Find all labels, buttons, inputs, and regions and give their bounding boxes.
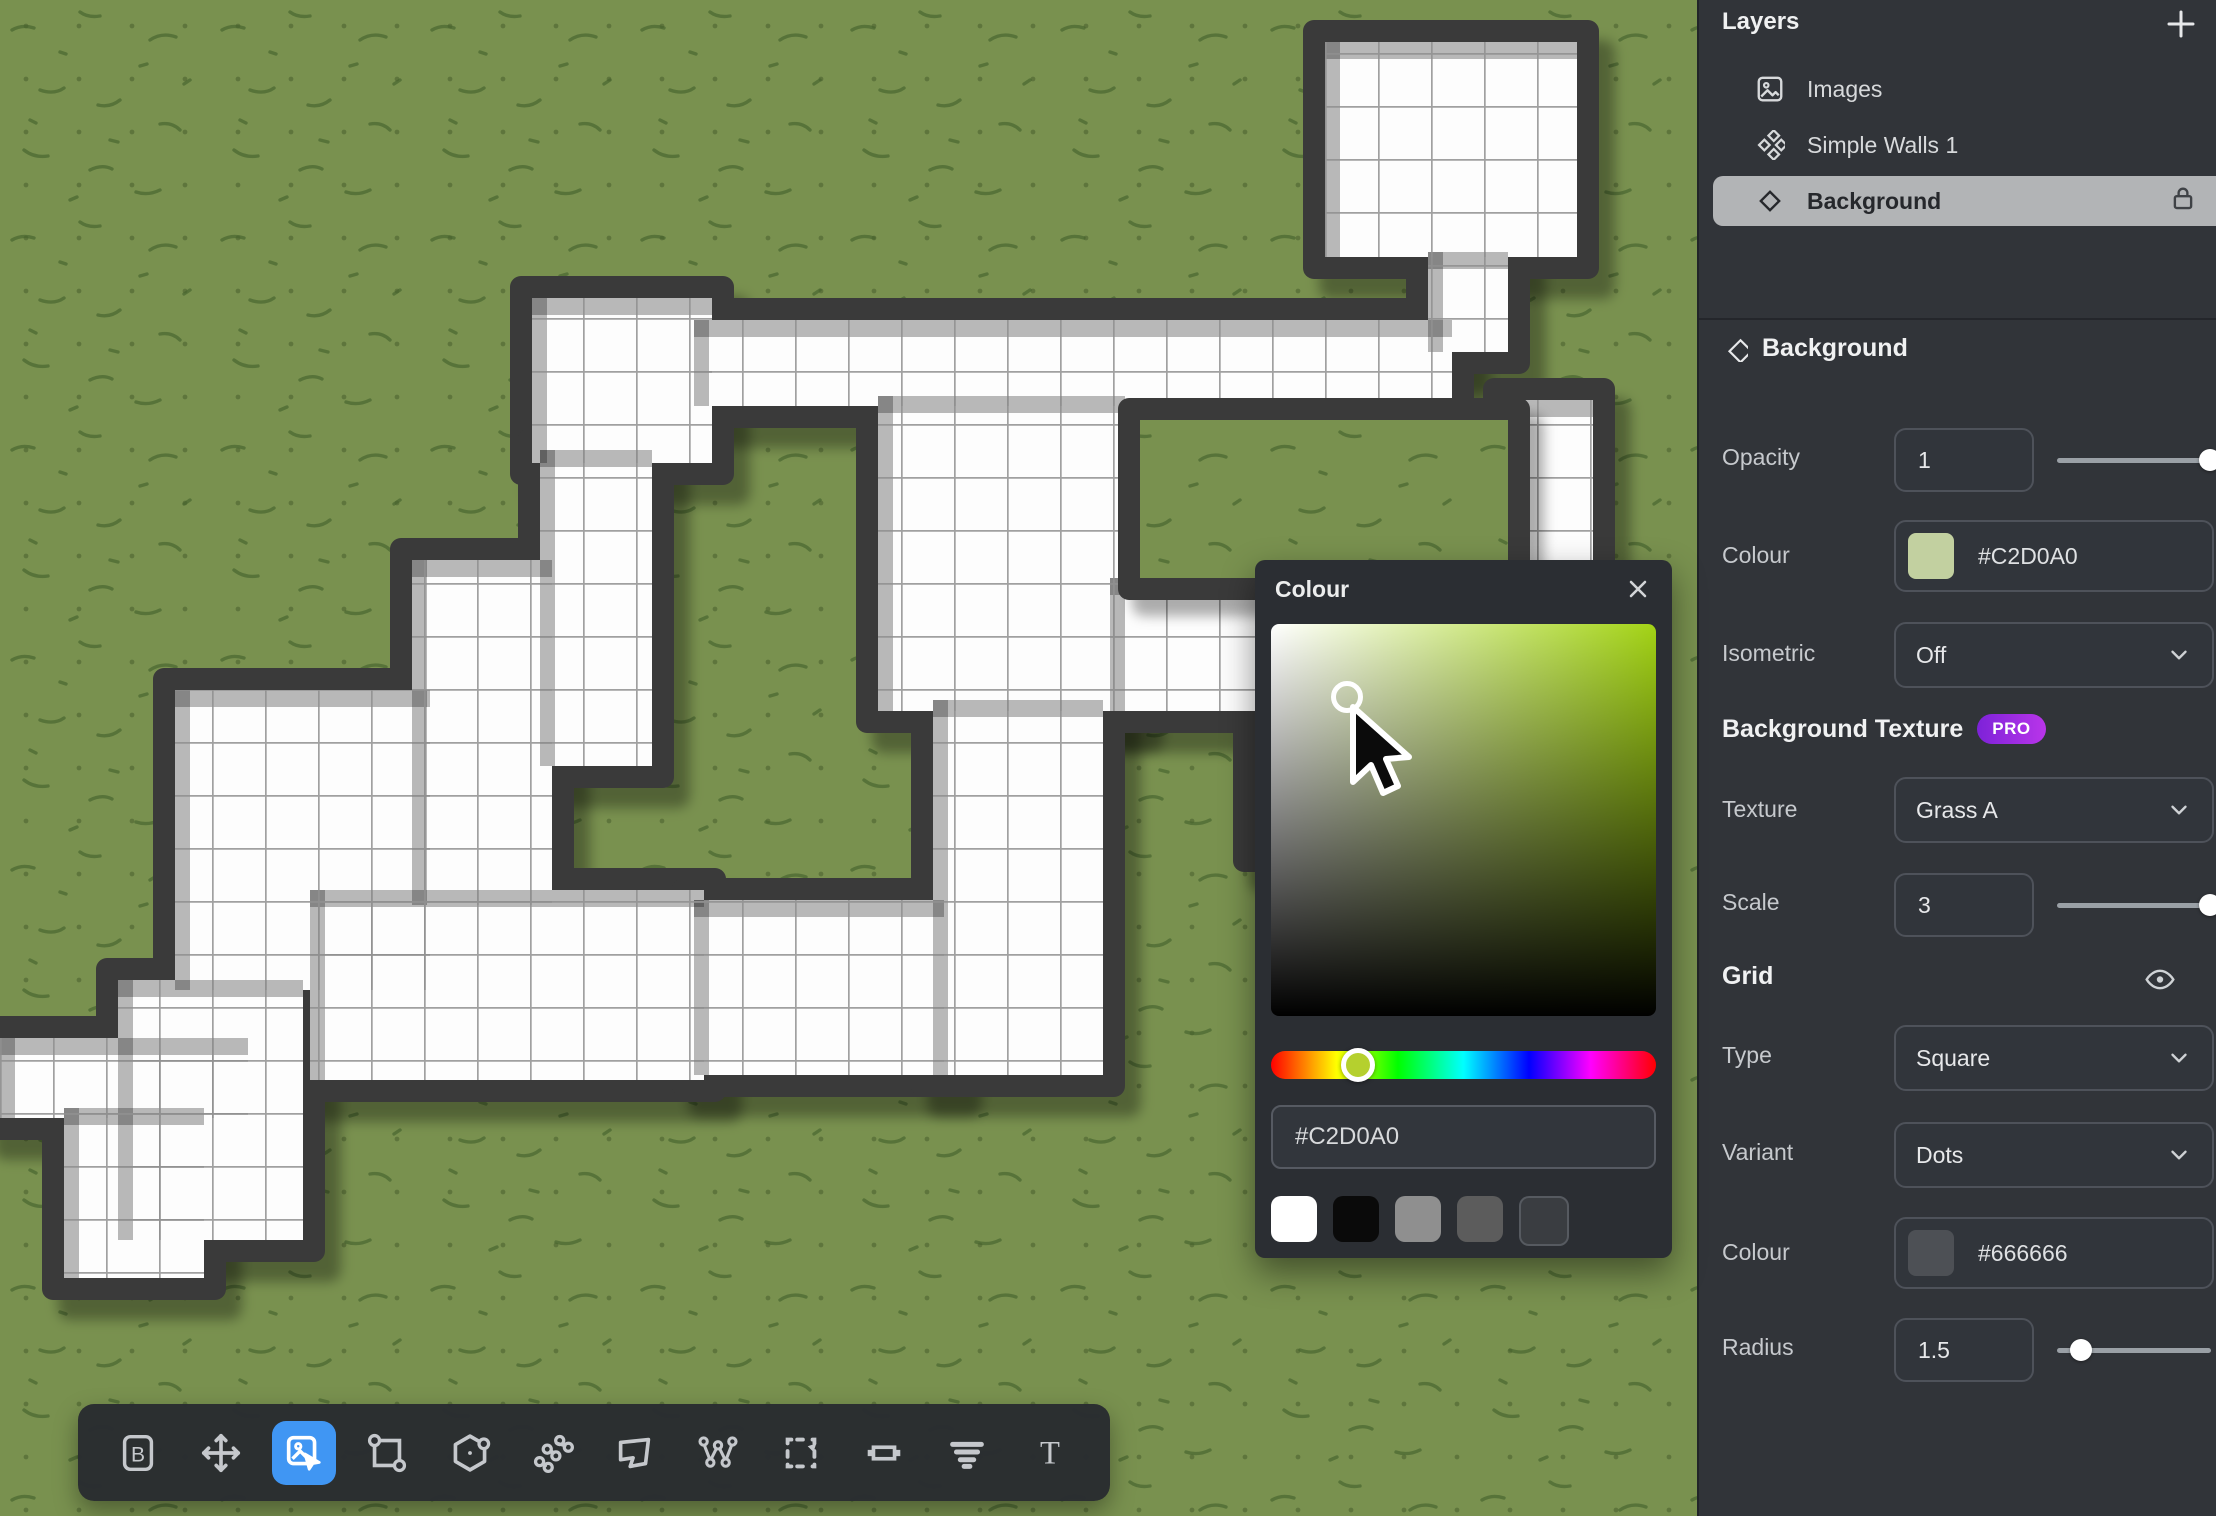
scale-slider[interactable] [2057, 873, 2215, 937]
tool-image-select[interactable] [272, 1421, 336, 1485]
grid-type-dropdown[interactable]: Square [1894, 1025, 2214, 1091]
hue-slider-knob[interactable] [1341, 1048, 1375, 1082]
opacity-label: Opacity [1722, 444, 1800, 471]
background-texture-title: Background Texture [1722, 715, 1963, 743]
grid-colour-hex-text: #666666 [1978, 1240, 2068, 1267]
tool-polygon[interactable] [603, 1421, 667, 1485]
layer-item-background[interactable]: Background [1713, 176, 2216, 226]
texture-label: Texture [1722, 796, 1797, 823]
bottom-toolbar: BT [78, 1404, 1110, 1501]
plus-icon [2163, 6, 2199, 42]
type-label: Type [1722, 1042, 1772, 1069]
lock-icon[interactable] [2168, 183, 2198, 219]
diamond-icon [1722, 336, 1748, 362]
app-window: { "layers_panel": { "title": "Layers", "… [0, 0, 2216, 1516]
door-icon [861, 1430, 907, 1476]
chevron-down-icon [2166, 1045, 2192, 1071]
type-value: Square [1916, 1045, 2166, 1072]
svg-text:T: T [1040, 1435, 1060, 1471]
walls-icon [1755, 130, 1785, 160]
chevron-down-icon [2166, 1142, 2192, 1168]
tool-wall-scatter[interactable] [521, 1421, 585, 1485]
background-section-header: Background [1722, 334, 1908, 363]
colour-dialog-header: Colour [1255, 560, 1672, 618]
background-texture-header: Background TexturePRO [1722, 714, 2046, 744]
hue-slider[interactable] [1271, 1051, 1656, 1079]
section-title: Background [1762, 334, 1908, 363]
grid-title: Grid [1722, 962, 1773, 990]
layer-item-images[interactable]: Images [1699, 62, 2216, 116]
diamond-icon [1755, 186, 1785, 216]
texture-dropdown[interactable]: Grass A [1894, 777, 2214, 843]
colour-swatch[interactable] [1908, 533, 1954, 579]
tool-door[interactable] [852, 1421, 916, 1485]
layer-label: Background [1807, 188, 1941, 215]
scale-value: 3 [1918, 892, 1931, 919]
move-icon [198, 1430, 244, 1476]
hexagon-node-icon [447, 1430, 493, 1476]
stairs-icon [944, 1430, 990, 1476]
preset-swatch-2[interactable] [1395, 1196, 1441, 1242]
variant-value: Dots [1916, 1142, 2166, 1169]
path-nodes-icon [695, 1430, 741, 1476]
tool-rect-transform[interactable] [355, 1421, 419, 1485]
colour-hex-text: #C2D0A0 [1978, 543, 2078, 570]
preset-swatch-3[interactable] [1457, 1196, 1503, 1242]
scale-label: Scale [1722, 889, 1780, 916]
radius-label: Radius [1722, 1334, 1794, 1361]
preset-swatch-4[interactable] [1519, 1196, 1569, 1246]
panel-divider [1699, 318, 2216, 320]
preset-swatch-0[interactable] [1271, 1196, 1317, 1242]
chevron-down-icon [2166, 797, 2192, 823]
svg-text:B: B [131, 1443, 145, 1466]
grid-section-header: Grid [1722, 962, 2194, 1002]
opacity-input[interactable]: 1 [1894, 428, 2034, 492]
add-layer-button[interactable] [2163, 6, 2199, 42]
tool-hexagon[interactable] [438, 1421, 502, 1485]
rect-nodes-icon [364, 1430, 410, 1476]
slider-knob[interactable] [2199, 449, 2216, 471]
slider-knob[interactable] [2199, 894, 2216, 916]
texture-value: Grass A [1916, 797, 2166, 824]
close-icon[interactable] [1624, 575, 1652, 603]
tool-stairs[interactable] [935, 1421, 999, 1485]
layer-label: Images [1807, 76, 1882, 103]
radius-value: 1.5 [1918, 1337, 1950, 1364]
slider-track [2057, 458, 2211, 463]
grid-visibility-toggle[interactable] [2144, 964, 2176, 1001]
hex-colour-value: #C2D0A0 [1295, 1123, 1399, 1151]
tool-path-nodes[interactable] [686, 1421, 750, 1485]
grid-colour-field[interactable]: #666666 [1894, 1217, 2214, 1289]
pro-badge: PRO [1977, 714, 2045, 744]
tool-boxed-b[interactable]: B [106, 1421, 170, 1485]
layers-panel-title: Layers [1722, 8, 1799, 36]
text-icon: T [1027, 1430, 1073, 1476]
opacity-slider[interactable] [2057, 428, 2215, 492]
tool-text[interactable]: T [1018, 1421, 1082, 1485]
preset-swatch-1[interactable] [1333, 1196, 1379, 1242]
saturation-value-area[interactable] [1271, 624, 1656, 1016]
isometric-dropdown[interactable]: Off [1894, 622, 2214, 688]
variant-label: Variant [1722, 1139, 1793, 1166]
radius-input[interactable]: 1.5 [1894, 1318, 2034, 1382]
tool-marquee-select[interactable] [769, 1421, 833, 1485]
boxed-b-icon: B [115, 1430, 161, 1476]
grid-colour-label: Colour [1722, 1239, 1790, 1266]
right-sidebar: Layers ImagesSimple Walls 1Background Ba… [1697, 0, 2216, 1516]
marquee-icon [778, 1430, 824, 1476]
colour-dialog-title: Colour [1275, 576, 1349, 603]
background-colour-field[interactable]: #C2D0A0 [1894, 520, 2214, 592]
scale-input[interactable]: 3 [1894, 873, 2034, 937]
preset-swatches [1271, 1196, 1569, 1246]
tool-move[interactable] [189, 1421, 253, 1485]
wall-scatter-icon [530, 1430, 576, 1476]
image-cursor-icon [281, 1430, 327, 1476]
layer-label: Simple Walls 1 [1807, 132, 1958, 159]
colour-picker-dialog: Colour #C2D0A0 [1255, 560, 1672, 1258]
polygon-icon [612, 1430, 658, 1476]
image-icon [1755, 74, 1785, 104]
grid-variant-dropdown[interactable]: Dots [1894, 1122, 2214, 1188]
chevron-down-icon [2166, 642, 2192, 668]
slider-knob[interactable] [2070, 1339, 2092, 1361]
colour-label: Colour [1722, 542, 1790, 569]
slider-track [2057, 903, 2211, 908]
eye-icon [2144, 964, 2176, 996]
radius-slider[interactable] [2057, 1318, 2215, 1382]
isometric-label: Isometric [1722, 640, 1815, 667]
isometric-value: Off [1916, 642, 2166, 669]
opacity-value: 1 [1918, 447, 1931, 474]
layer-item-simple-walls-1[interactable]: Simple Walls 1 [1699, 118, 2216, 172]
grid-colour-swatch[interactable] [1908, 1230, 1954, 1276]
hex-colour-input[interactable]: #C2D0A0 [1271, 1105, 1656, 1169]
